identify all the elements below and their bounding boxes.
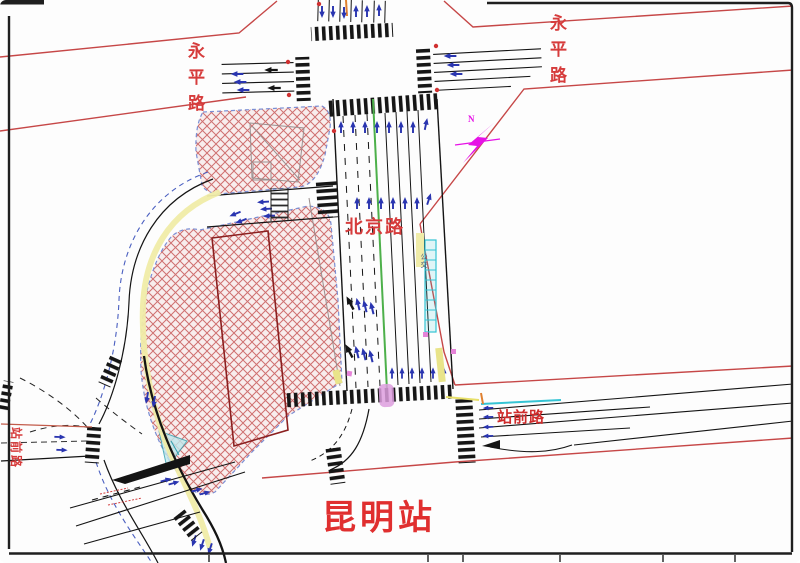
label-beijing-road: 北京路	[345, 218, 405, 236]
crosswalk	[455, 399, 475, 464]
traffic-plan-canvas: N 永平路 永平路 北京路 站前路 站前路 昆明站 公交	[0, 0, 800, 563]
crosswalk	[327, 93, 440, 117]
crosswalk	[0, 380, 14, 411]
label-zhanqian-road-east: 站前路	[497, 411, 545, 426]
label-zhanqian-road-west: 站前路	[10, 427, 22, 469]
crosswalk	[326, 447, 346, 485]
beijing-road-north	[311, 0, 394, 41]
label-yongping-road-east: 永平路	[548, 14, 565, 92]
crosswalk	[316, 180, 340, 218]
bike-crossing	[271, 188, 288, 221]
label-yongping-road-west: 永平路	[186, 42, 203, 120]
sheet-frame	[0, 0, 792, 562]
yongping-road-west	[222, 57, 311, 101]
crosswalk	[295, 57, 311, 101]
compass-n-label: N	[468, 114, 475, 124]
turn-arrow-cluster-1	[343, 295, 376, 315]
construction-hatch-areas	[141, 106, 342, 495]
turn-arrow-cluster-2	[342, 343, 375, 363]
crosswalk	[311, 23, 394, 41]
plan-drawing: N	[0, 0, 800, 563]
crosswalk	[416, 47, 432, 94]
yongping-road-east	[416, 44, 543, 94]
label-bus-lane: 公交	[420, 253, 427, 269]
lane-arrows	[231, 71, 250, 93]
green-lane-line	[373, 99, 387, 391]
crosswalk	[85, 427, 101, 464]
stopline-arrows-north	[338, 118, 430, 133]
north-arrow-icon: N	[455, 114, 500, 163]
red-boundary-lines	[0, 1, 793, 478]
label-kunming-station: 昆明站	[322, 502, 436, 536]
title-block-ticks	[209, 555, 735, 562]
